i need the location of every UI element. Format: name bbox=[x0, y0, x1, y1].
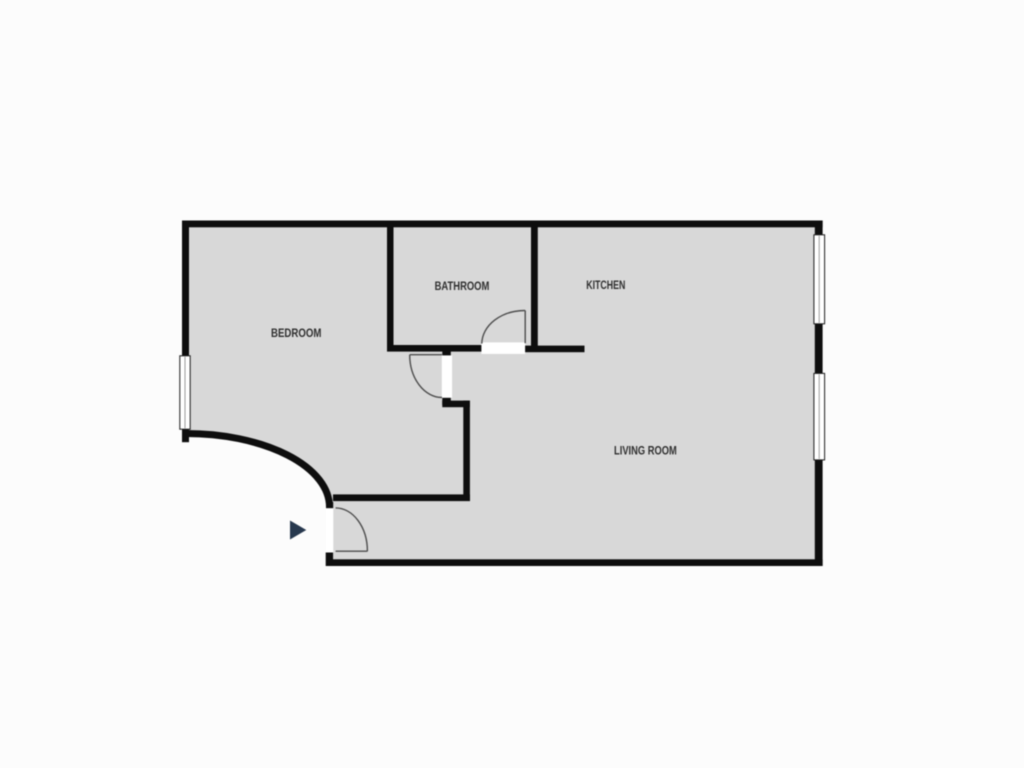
svg-text:BEDROOM: BEDROOM bbox=[271, 326, 321, 340]
svg-text:BATHROOM: BATHROOM bbox=[435, 279, 490, 293]
svg-text:LIVING ROOM: LIVING ROOM bbox=[614, 443, 677, 457]
svg-text:KITCHEN: KITCHEN bbox=[586, 278, 625, 292]
